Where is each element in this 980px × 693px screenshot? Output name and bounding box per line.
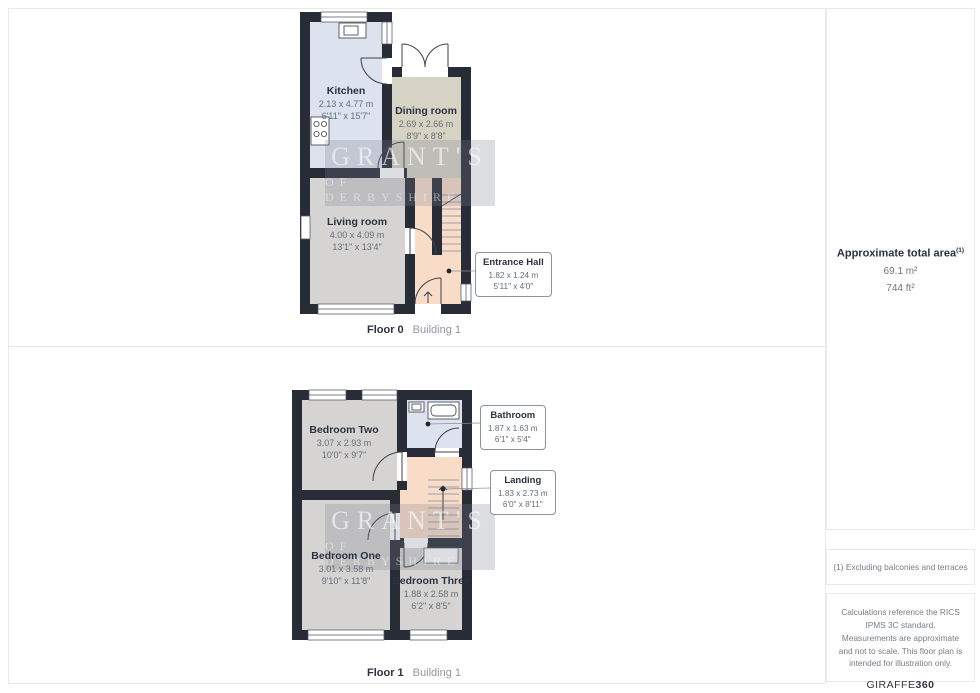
living-room-label: Living room 4.00 x 4.09 m 13'1" x 13'4" [327, 216, 387, 253]
watermark-subtitle: OF DERBYSHIRE [325, 175, 495, 205]
living-wall-recess [301, 216, 310, 239]
bathroom-callout-dot [426, 422, 431, 427]
kitchen-sink-icon [339, 23, 366, 38]
watermark-name: GRANT'S [331, 142, 489, 172]
watermark-name: GRANT'S [331, 506, 489, 536]
floorplan-drawing [0, 0, 980, 693]
entrance-hall-callout: Entrance Hall 1.82 x 1.24 m 5'11" x 4'0" [475, 252, 552, 297]
agency-watermark-floor0: GRANT'S OF DERBYSHIRE [325, 140, 495, 206]
landing-callout-dot [441, 487, 446, 492]
floor1-caption: Floor 1Building 1 [367, 667, 461, 679]
kitchen-label: Kitchen 2.13 x 4.77 m 6'11" x 15'7" [319, 85, 374, 122]
floorplan-page: Approximate total area(1) 69.1 m² 744 ft… [0, 0, 980, 693]
bedroom-three-label: Bedroom Three 1.88 x 2.58 m 6'2" x 8'5" [392, 575, 470, 612]
entrance-callout-dot [447, 269, 452, 274]
bathtub-icon [428, 402, 459, 419]
bathroom-sink-icon [409, 402, 424, 412]
bedroom-one-label: Bedroom One 3.01 x 3.58 m 9'10" x 11'8" [311, 550, 380, 587]
bedroom-two-label: Bedroom Two 3.07 x 2.93 m 10'0" x 9'7" [309, 424, 378, 461]
landing-callout: Landing 1.83 x 2.73 m 6'0" x 8'11" [490, 470, 556, 515]
dining-room-label: Dining room 2.69 x 2.66 m 8'9" x 8'8" [395, 105, 457, 142]
floor0-caption: Floor 0Building 1 [367, 324, 461, 336]
bathroom-callout: Bathroom 1.87 x 1.63 m 6'1" x 5'4" [480, 405, 546, 450]
